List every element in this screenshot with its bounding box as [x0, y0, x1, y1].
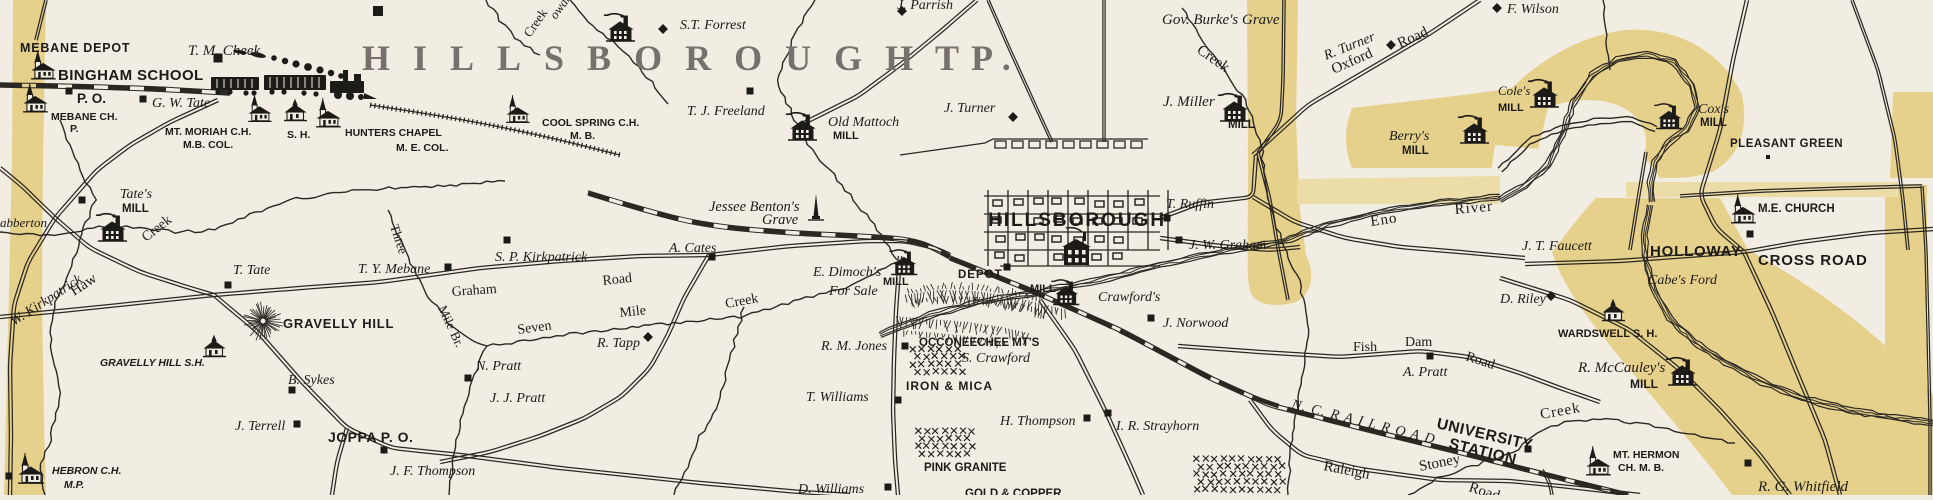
svg-text:T. Y. Mebane: T. Y. Mebane	[358, 262, 430, 277]
svg-text:J. F. Thompson: J. F. Thompson	[390, 464, 475, 479]
svg-text:Old Mattoch: Old Mattoch	[828, 115, 899, 130]
svg-text:Dam: Dam	[1405, 335, 1432, 350]
svg-text:T. Ruffin: T. Ruffin	[1166, 197, 1214, 212]
svg-text:Graham: Graham	[451, 282, 497, 300]
svg-text:River: River	[1454, 199, 1494, 218]
svg-text:MILL: MILL	[1030, 283, 1056, 295]
svg-text:S. Crawford: S. Crawford	[962, 351, 1031, 366]
svg-text:M.E. CHURCH: M.E. CHURCH	[1758, 203, 1835, 215]
svg-text:Cabe's Ford: Cabe's Ford	[1648, 273, 1718, 288]
svg-text:H. Thompson: H. Thompson	[999, 414, 1075, 429]
svg-text:MILL: MILL	[1700, 117, 1727, 129]
svg-text:Gov. Burke's Grave: Gov. Burke's Grave	[1162, 12, 1280, 28]
svg-text:Cox's: Cox's	[1698, 102, 1730, 117]
svg-text:M.P.: M.P.	[64, 479, 84, 491]
svg-text:J. Norwood: J. Norwood	[1163, 316, 1229, 331]
svg-text:T. M. Cheek: T. M. Cheek	[188, 43, 261, 59]
svg-text:P. O.: P. O.	[77, 91, 106, 106]
svg-text:Berry's: Berry's	[1389, 129, 1430, 144]
svg-text:IRON & MICA: IRON & MICA	[906, 379, 993, 393]
svg-text:J. J. Pratt: J. J. Pratt	[490, 391, 546, 406]
svg-text:I. R. Strayhorn: I. R. Strayhorn	[1115, 419, 1199, 434]
svg-text:Mile: Mile	[619, 303, 647, 321]
svg-text:GOLD & COPPER: GOLD & COPPER	[965, 488, 1062, 495]
svg-text:PLEASANT GREEN: PLEASANT GREEN	[1730, 138, 1843, 150]
svg-text:MILL: MILL	[833, 130, 859, 142]
svg-text:M.B. COL.: M.B. COL.	[183, 139, 233, 151]
svg-text:COOL SPRING C.H.: COOL SPRING C.H.	[542, 117, 639, 129]
svg-text:abberton: abberton	[0, 215, 47, 230]
svg-text:TP.: TP.	[935, 38, 1023, 78]
svg-text:T. Williams: T. Williams	[806, 390, 869, 405]
svg-text:F. Wilson: F. Wilson	[1506, 2, 1559, 17]
svg-text:Cole's: Cole's	[1498, 83, 1530, 98]
svg-text:R. G. Whitfield: R. G. Whitfield	[1757, 479, 1848, 495]
svg-text:J. Miller: J. Miller	[1163, 94, 1215, 110]
svg-text:HUNTERS CHAPEL: HUNTERS CHAPEL	[345, 127, 442, 139]
svg-text:J. Turner: J. Turner	[944, 101, 996, 116]
svg-text:D. Williams: D. Williams	[797, 482, 865, 495]
svg-text:MT. MORIAH C.H.: MT. MORIAH C.H.	[165, 126, 251, 138]
svg-text:M. B.: M. B.	[570, 130, 595, 142]
svg-text:For Sale: For Sale	[828, 284, 878, 299]
svg-text:M. E. COL.: M. E. COL.	[396, 142, 449, 154]
svg-text:J. Parrish: J. Parrish	[897, 0, 953, 13]
svg-text:MILL: MILL	[1498, 102, 1524, 114]
svg-text:Tate's: Tate's	[120, 187, 153, 202]
svg-text:Grave: Grave	[762, 212, 799, 228]
svg-text:Crawford's: Crawford's	[1098, 290, 1161, 305]
svg-text:A. Cates: A. Cates	[668, 241, 717, 256]
svg-text:Road: Road	[602, 271, 633, 289]
svg-text:JOPPA P. O.: JOPPA P. O.	[328, 429, 413, 445]
svg-text:HEBRON C.H.: HEBRON C.H.	[52, 465, 122, 477]
svg-text:J. W. Graham: J. W. Graham	[1189, 238, 1266, 253]
svg-text:CROSS ROAD: CROSS ROAD	[1758, 252, 1868, 269]
svg-text:OCCONEECHEE MT'S: OCCONEECHEE MT'S	[919, 337, 1040, 349]
svg-text:CH. M. B.: CH. M. B.	[1618, 462, 1664, 474]
svg-text:S.T. Forrest: S.T. Forrest	[680, 18, 747, 33]
svg-text:G. W. Tate: G. W. Tate	[152, 96, 210, 111]
svg-text:B. Sykes: B. Sykes	[288, 373, 335, 388]
svg-text:E. Dimoch's: E. Dimoch's	[812, 265, 882, 280]
svg-text:GRAVELLY HILL: GRAVELLY HILL	[283, 316, 394, 331]
svg-text:Fish: Fish	[1353, 340, 1377, 355]
svg-text:BINGHAM SCHOOL: BINGHAM SCHOOL	[58, 67, 204, 84]
svg-text:MILL: MILL	[883, 276, 909, 288]
svg-text:HILLSBOROUGH: HILLSBOROUGH	[988, 210, 1166, 231]
svg-text:HILLSBOROUGH: HILLSBOROUGH	[362, 38, 936, 78]
svg-text:R. McCauley's: R. McCauley's	[1577, 360, 1666, 376]
svg-text:N. Pratt: N. Pratt	[475, 359, 522, 374]
svg-text:T. Tate: T. Tate	[233, 263, 270, 278]
svg-text:MILL: MILL	[1402, 145, 1429, 157]
svg-text:MILL: MILL	[1630, 377, 1658, 391]
svg-text:MEBANE DEPOT: MEBANE DEPOT	[20, 41, 130, 55]
svg-text:D. Riley: D. Riley	[1499, 292, 1547, 307]
svg-text:WARDSWELL S. H.: WARDSWELL S. H.	[1558, 328, 1657, 340]
svg-text:S. P. Kirkpatrick: S. P. Kirkpatrick	[495, 250, 588, 265]
svg-text:MEBANE CH.: MEBANE CH.	[51, 111, 118, 123]
svg-text:J. Terrell: J. Terrell	[235, 419, 285, 434]
svg-text:P.: P.	[70, 123, 79, 135]
svg-text:PINK GRANITE: PINK GRANITE	[924, 462, 1007, 474]
svg-text:R. Tapp: R. Tapp	[596, 336, 640, 351]
svg-text:DEPOT: DEPOT	[958, 269, 1003, 281]
svg-text:R. M. Jones: R. M. Jones	[820, 339, 888, 354]
svg-text:GRAVELLY HILL S.H.: GRAVELLY HILL S.H.	[100, 357, 205, 369]
svg-text:S. H.: S. H.	[287, 129, 310, 141]
svg-text:J. T. Faucett: J. T. Faucett	[1522, 239, 1593, 254]
svg-text:MILL: MILL	[1228, 119, 1255, 131]
svg-text:MILL: MILL	[122, 203, 149, 215]
svg-text:T. J. Freeland: T. J. Freeland	[687, 104, 766, 119]
svg-text:A. Pratt: A. Pratt	[1402, 365, 1448, 380]
svg-text:HOLLOWAY: HOLLOWAY	[1650, 243, 1742, 260]
svg-text:MT. HERMON: MT. HERMON	[1613, 449, 1680, 461]
